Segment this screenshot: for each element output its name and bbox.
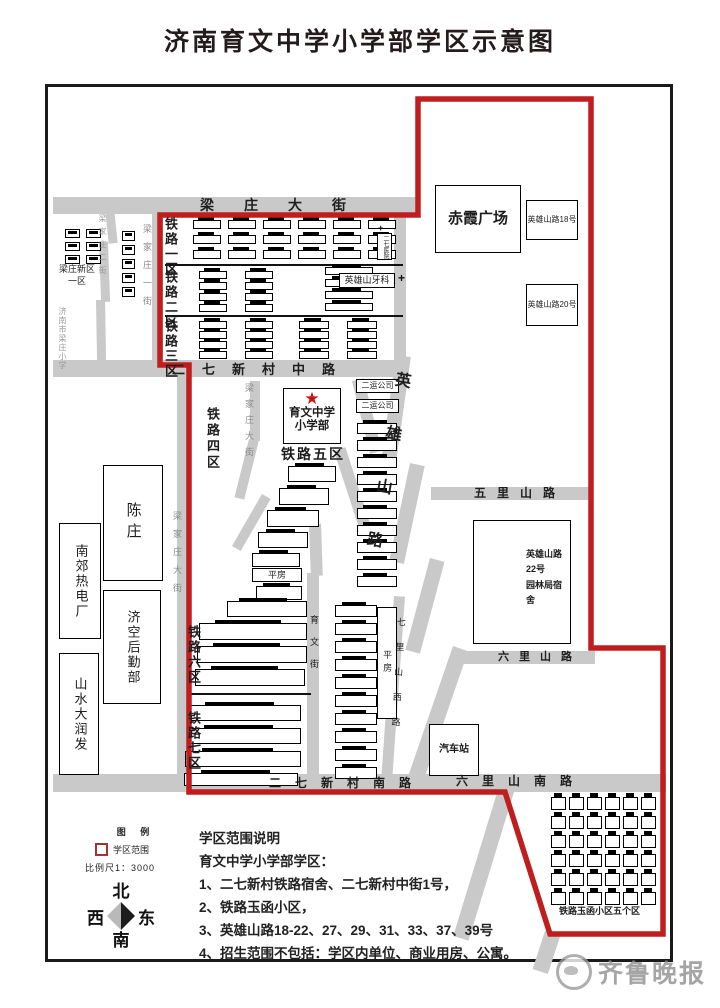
notes-item-2: 2、铁路玉函小区， (199, 896, 539, 919)
building-roof-bar (68, 244, 77, 247)
building-roof-bar (590, 812, 597, 817)
building-roof-bar (572, 831, 579, 836)
building (122, 259, 135, 269)
building (605, 892, 620, 905)
building-roof-bar (250, 338, 266, 342)
street-label-erqi-xincun-zhonglu: 二七新村中路 (172, 363, 352, 376)
building-roof-bar (250, 290, 266, 294)
street-label-wuli-shanlu: 五里山路 (474, 487, 566, 499)
building-roof-bar (644, 888, 651, 893)
building (199, 351, 227, 359)
building (267, 510, 319, 527)
building-roof-bar (554, 793, 561, 798)
building-roof-bar (554, 869, 561, 874)
building (551, 835, 566, 848)
building (641, 854, 656, 867)
building-roof-bar (554, 812, 561, 817)
building (623, 835, 638, 848)
zone-label-tielu-5: 铁路五区 (281, 444, 345, 464)
building-roof-bar (338, 247, 354, 251)
building (623, 854, 638, 867)
building (335, 641, 377, 653)
legend: 图 例 学区范围 比例尺1：3000 (81, 825, 191, 874)
building-roof-bar (233, 232, 249, 236)
page: 济南育文中学小学部学区示意图 梁庄大街二七新村中路二七新村南路六里山南路五里山路… (0, 0, 720, 1008)
building (122, 273, 135, 283)
notes-subheading: 育文中学小学部学区： (199, 850, 539, 873)
place-label-yuanlinju: 英雄山路22号园林局宿舍 (526, 547, 570, 608)
building-roof-bar (590, 888, 597, 893)
building (623, 892, 638, 905)
building (605, 873, 620, 886)
building (199, 271, 227, 279)
building-roof-bar (590, 850, 597, 855)
building (335, 677, 377, 689)
building-roof-bar (554, 831, 561, 836)
building-roof-bar (338, 217, 354, 221)
building-roof-bar (304, 338, 321, 342)
building-roof-bar (259, 550, 288, 554)
building (228, 235, 256, 244)
building (333, 250, 361, 259)
notes-item-4: 4、招生范围不包括：学区内单位、商业用房、公寓。 (199, 942, 539, 965)
zone-label-tielu-4: 铁路四区 (206, 407, 219, 471)
building-roof-bar (342, 728, 367, 732)
zone-label-liangzhuang-xinqu: 梁庄新区一区 (53, 264, 101, 287)
building-roof-bar (198, 247, 214, 251)
street-label-liuli-shanlu: 六里山路 (498, 652, 582, 663)
building (605, 797, 620, 810)
building (551, 816, 566, 829)
building (245, 293, 273, 301)
building (551, 854, 566, 867)
building-roof-bar (268, 217, 284, 221)
building (252, 553, 300, 567)
building-roof-bar (250, 301, 266, 305)
building-roof-bar (250, 328, 266, 332)
building (325, 303, 373, 311)
place-yingxiongshan-lu-20: 英雄山路20号 (526, 284, 578, 326)
building-roof-bar (626, 812, 633, 817)
school-marker-box: ★ 育文中学 小学部 (283, 388, 341, 444)
building (623, 816, 638, 829)
building (551, 797, 566, 810)
zone-separator-line (189, 693, 311, 695)
building-roof-bar (304, 318, 321, 322)
medical-cross-icon: + (398, 271, 405, 285)
building-roof-bar (626, 888, 633, 893)
road-segment (405, 558, 444, 654)
building (245, 351, 273, 359)
building-roof-bar (268, 247, 284, 251)
building (587, 873, 602, 886)
building (199, 282, 227, 290)
building-roof-bar (125, 233, 132, 236)
building-roof-bar (342, 764, 367, 768)
building (569, 816, 584, 829)
building (193, 250, 221, 259)
building-roof-bar (303, 247, 319, 251)
building (122, 287, 135, 297)
building (227, 601, 307, 617)
building (335, 605, 377, 617)
building (195, 669, 305, 686)
building-roof-bar (211, 666, 278, 670)
street-label-yuwen-jie: 育文街 (309, 615, 318, 681)
compass: 北 西 东 南 (81, 883, 161, 949)
building-roof-bar (342, 656, 367, 660)
building-roof-bar (554, 888, 561, 893)
building-roof-bar (303, 232, 319, 236)
building (228, 220, 256, 229)
map-frame: 梁庄大街二七新村中路二七新村南路六里山南路五里山路六里山路英雄山路七里山西路育文… (45, 84, 673, 962)
building-roof-bar (125, 289, 132, 292)
school-name-line2: 小学部 (284, 420, 340, 433)
street-label-liuli-shan-nanlu: 六里山南路 (456, 775, 586, 787)
building-roof-bar (266, 529, 296, 533)
watermark-brand: 齐鲁晚报 (598, 954, 706, 990)
building-roof-bar (250, 268, 266, 272)
building (122, 231, 135, 241)
building (263, 220, 291, 229)
building-roof-bar (303, 217, 319, 221)
building-roof-bar (342, 746, 367, 750)
star-icon: ★ (284, 390, 340, 407)
building-roof-bar (125, 275, 132, 278)
building (569, 854, 584, 867)
building (197, 646, 307, 663)
map-scale: 比例尺1：3000 (85, 861, 191, 874)
building-roof-bar (352, 338, 369, 342)
building-roof-bar (204, 338, 220, 342)
building-roof-bar (215, 620, 281, 624)
building (258, 532, 308, 548)
building-roof-bar (608, 888, 615, 893)
building (347, 351, 377, 359)
building (587, 892, 602, 905)
building-roof-bar (198, 217, 214, 221)
building (245, 282, 273, 290)
place-yuanlinju: 英雄山路22号园林局宿舍 (473, 520, 571, 644)
building-roof-bar (590, 793, 597, 798)
legend-title: 图 例 (81, 825, 191, 838)
building (193, 220, 221, 229)
building (185, 751, 301, 767)
building-roof-bar (204, 301, 220, 305)
building-roof-bar (644, 793, 651, 798)
building-roof-bar (626, 793, 633, 798)
building (279, 488, 329, 505)
building-roof-bar (590, 869, 597, 874)
building (335, 749, 377, 761)
building (228, 250, 256, 259)
building (623, 873, 638, 886)
building-roof-bar (263, 583, 290, 587)
building-roof-bar (239, 598, 287, 602)
building (641, 816, 656, 829)
building (65, 229, 80, 238)
building (333, 220, 361, 229)
street-label-liangjiazhuang-yijie: 梁家庄一街 (142, 224, 151, 314)
building-roof-bar (342, 602, 367, 606)
building-roof-bar (644, 812, 651, 817)
notes-heading: 学区范围说明 (199, 827, 539, 850)
building-roof-bar (204, 268, 220, 272)
building (335, 713, 377, 725)
building-roof-bar (233, 217, 249, 221)
building (335, 623, 377, 635)
building (299, 351, 329, 359)
building-roof-bar (204, 290, 220, 294)
building-roof-bar (342, 674, 367, 678)
building-roof-bar (572, 888, 579, 893)
compass-east: 东 (138, 904, 155, 929)
compass-diamond-icon (107, 902, 135, 930)
newspaper-logo-icon (556, 954, 592, 990)
building-roof-bar (268, 232, 284, 236)
building (193, 235, 221, 244)
building-roof-bar (626, 869, 633, 874)
notes-item-3: 3、英雄山路18-22、27、29、31、33、37、39号 (199, 919, 539, 942)
building-roof-bar (338, 232, 354, 236)
building (298, 250, 326, 259)
building-roof-bar (332, 288, 361, 292)
building-roof-bar (342, 620, 367, 624)
building-roof-bar (608, 869, 615, 874)
zone-separator-line (165, 315, 403, 317)
building (605, 854, 620, 867)
building (122, 245, 135, 255)
building (605, 835, 620, 848)
building-roof-bar (554, 850, 561, 855)
building (187, 728, 301, 744)
building-roof-bar (608, 793, 615, 798)
building (587, 816, 602, 829)
building-roof-bar (644, 831, 651, 836)
building-roof-bar (332, 300, 361, 304)
building (199, 293, 227, 301)
building (65, 242, 80, 251)
street-label-liangzhuang-dajie: 梁庄大街 (200, 198, 376, 212)
compass-north: 北 (81, 883, 161, 900)
building-roof-bar (342, 638, 367, 642)
building-roof-bar (68, 257, 77, 260)
place-yingxiongshan-yake: 英雄山牙科 (339, 273, 395, 288)
zone-label-tielu-1: 铁路一区 (164, 217, 177, 277)
place-chixia-guangchang: 赤霞广场 (435, 185, 521, 253)
building-roof-bar (275, 507, 306, 511)
building-roof-bar (89, 244, 98, 247)
road-segment (309, 524, 323, 576)
building-roof-bar (287, 485, 317, 489)
building (335, 659, 377, 671)
building-roof-bar (204, 279, 220, 283)
building (587, 835, 602, 848)
building-roof-bar (89, 257, 98, 260)
building-roof-bar (204, 318, 220, 322)
building-roof-bar (125, 261, 132, 264)
building-roof-bar (373, 217, 389, 221)
building-roof-bar (626, 850, 633, 855)
building (325, 291, 373, 299)
building-roof-bar (204, 725, 273, 729)
building (335, 695, 377, 707)
building-roof-bar (572, 793, 579, 798)
building-roof-bar (608, 831, 615, 836)
building-roof-bar (89, 231, 98, 234)
building (587, 854, 602, 867)
building-roof-bar (68, 231, 77, 234)
building-roof-bar (202, 748, 273, 752)
building-roof-bar (352, 348, 369, 352)
building-roof-bar (644, 869, 651, 874)
zone-label-yuhan-caption: 铁路玉函小区五个区 (559, 907, 640, 916)
building (641, 835, 656, 848)
building-roof-bar (626, 831, 633, 836)
building (641, 797, 656, 810)
building-roof-bar (342, 692, 367, 696)
place-qichezhan: 汽车站 (429, 724, 479, 776)
zone-label-tielu-6: 铁路六区 (187, 625, 200, 685)
building-roof-bar (250, 279, 266, 283)
building-roof-bar (204, 348, 220, 352)
building-roof-bar (352, 328, 369, 332)
building-roof-bar (590, 831, 597, 836)
building (569, 873, 584, 886)
school-name-line1: 育文中学 (284, 407, 340, 420)
notes-item-1: 1、二七新村铁路宿舍、二七新村中街1号， (199, 873, 539, 896)
road-segment (96, 300, 106, 368)
building-roof-bar (213, 643, 280, 647)
building (298, 220, 326, 229)
building-roof-bar (572, 850, 579, 855)
building (569, 835, 584, 848)
building (569, 797, 584, 810)
map-canvas: 梁庄大街二七新村中路二七新村南路六里山南路五里山路六里山路英雄山路七里山西路育文… (3, 3, 720, 1008)
place-nanjiao-redianchang: 南郊热电厂 (59, 523, 101, 639)
building (641, 873, 656, 886)
building (551, 873, 566, 886)
building (245, 271, 273, 279)
place-erqi-yiyuan: 二七医院 (377, 233, 392, 260)
building (199, 623, 307, 640)
legend-boundary-label: 学区范围 (113, 843, 149, 856)
building (335, 731, 377, 743)
building-roof-bar (233, 247, 249, 251)
building (65, 255, 80, 264)
zone-label-tielu-3: 铁路三区 (164, 319, 177, 379)
building (333, 235, 361, 244)
building (605, 816, 620, 829)
compass-west: 西 (87, 904, 104, 929)
place-chenzhuang: 陈庄 (103, 465, 163, 581)
building-roof-bar (250, 348, 266, 352)
street-label-liangjiazhuang-dajie-south: 梁家庄大街 (172, 511, 181, 601)
street-label-jinan-liangzhuang-xiaoxue: 济南市梁庄小学 (58, 307, 66, 370)
zone-label-tielu-7: 铁路七区 (187, 711, 200, 771)
building (551, 892, 566, 905)
building-roof-bar (352, 318, 369, 322)
building-roof-bar (201, 770, 270, 774)
street-label-erqi-xincun-nanlu: 二七新村南路 (269, 777, 425, 789)
building-roof-bar (608, 850, 615, 855)
watermark: 齐鲁晚报 (556, 954, 706, 990)
place-jikong-houqinbu: 济空后勤部 (103, 590, 161, 704)
street-label-liangjiazhuang-dajie-north: 梁家庄大街 (244, 383, 253, 463)
building (641, 892, 656, 905)
building-roof-bar (572, 869, 579, 874)
building-roof-bar (342, 710, 367, 714)
building (263, 235, 291, 244)
building (288, 466, 336, 482)
place-yingxiongshan-lu-18: 英雄山路18号 (526, 200, 578, 240)
building (569, 892, 584, 905)
building-roof-bar (304, 328, 321, 332)
building (587, 797, 602, 810)
place-pingfang-west: 平房 (252, 568, 302, 582)
building (245, 304, 273, 312)
building-roof-bar (204, 328, 220, 332)
medical-cross-icon: + (378, 223, 383, 233)
district-boundary-symbol (95, 843, 108, 856)
building (623, 797, 638, 810)
building-roof-bar (304, 348, 321, 352)
building-roof-bar (644, 850, 651, 855)
road-segment (152, 213, 163, 363)
building-roof-bar (198, 232, 214, 236)
building (189, 705, 301, 721)
building-roof-bar (125, 247, 132, 250)
building (298, 235, 326, 244)
zone-separator-line (165, 264, 403, 266)
place-shanshui-darunfa: 山水大润发 (59, 653, 99, 775)
district-notes: 学区范围说明 育文中学小学部学区： 1、二七新村铁路宿舍、二七新村中街1号， 2… (199, 827, 539, 965)
building-roof-bar (608, 812, 615, 817)
building (263, 250, 291, 259)
building-roof-bar (332, 264, 361, 268)
building-roof-bar (572, 812, 579, 817)
building-roof-bar (205, 702, 273, 706)
building-roof-bar (250, 318, 266, 322)
building (199, 304, 227, 312)
compass-south: 南 (81, 932, 161, 949)
building-roof-bar (363, 420, 387, 424)
